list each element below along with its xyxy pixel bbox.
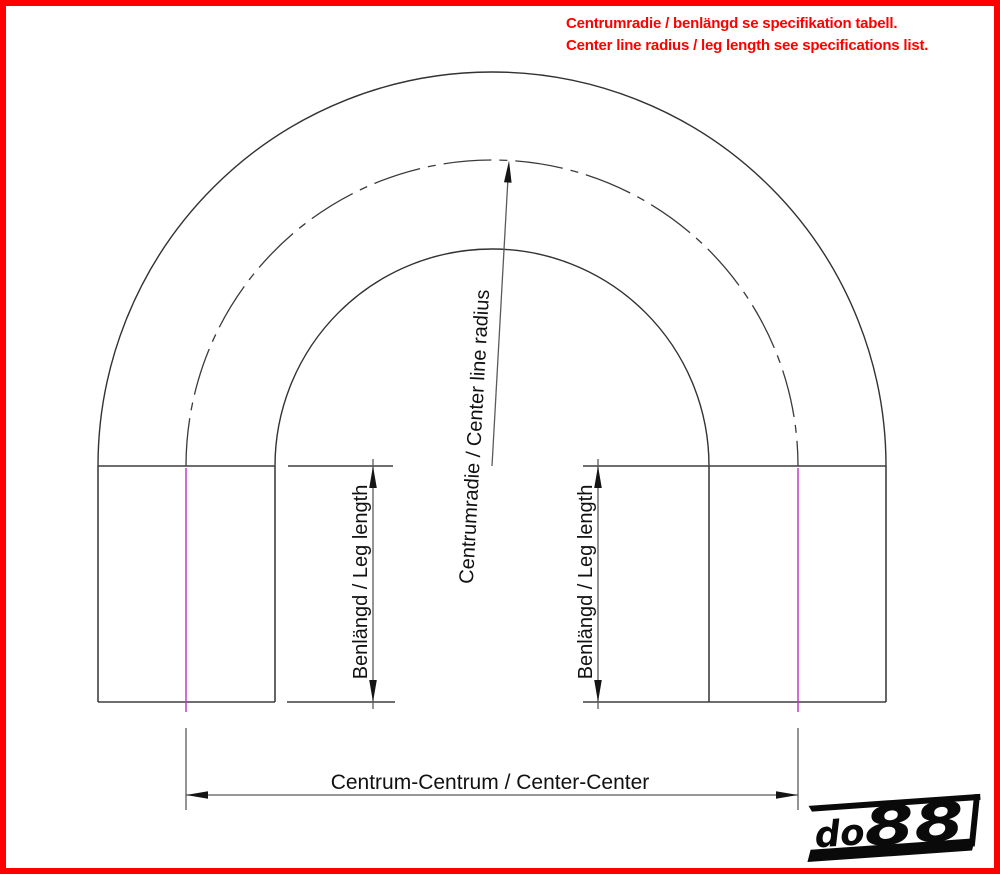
arrowhead-center-center-left [186,791,208,799]
radius-dimension-line [492,176,508,466]
leg-length-label-right: Benlängd / Leg length [575,485,597,680]
outer-arc [98,72,886,466]
leg-length-label-left: Benlängd / Leg length [350,485,372,680]
drawing-page: Centrumradie / benlängd se specifikation… [0,0,1000,874]
do88-logo: do 88 [803,788,984,863]
logo-text-88: 88 [862,789,966,859]
arrowhead-left-dim-down [369,680,377,702]
logo-text-do: do [813,812,866,856]
arrowhead-right-dim-down [594,680,602,702]
center-line-radius-label: Centrumradie / Center line radius [456,289,494,584]
center-center-label: Centrum-Centrum / Center-Center [331,771,650,794]
arrowhead-center-center-right [776,791,798,799]
arrowhead-radius [504,161,512,183]
pipe-bend-diagram: Benlängd / Leg length Benlängd / Leg len… [0,0,1000,874]
inner-arc [275,249,709,466]
